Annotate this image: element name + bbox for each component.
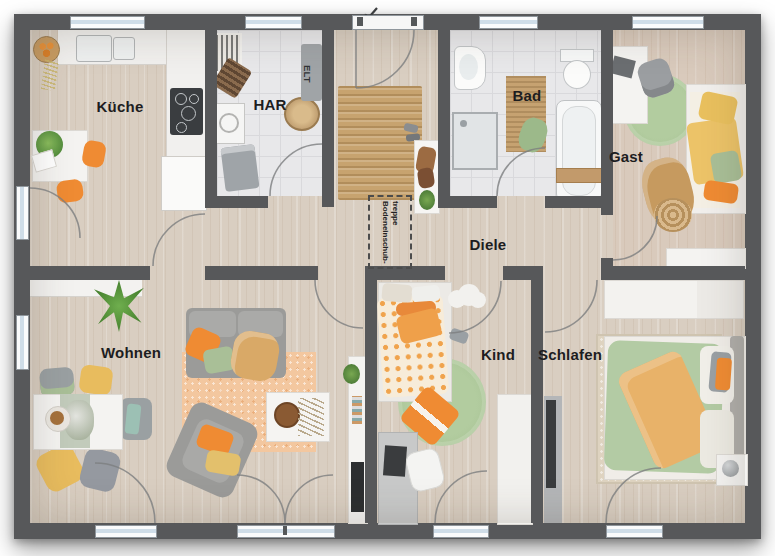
room-label-gast: Gast xyxy=(590,148,662,165)
wall-diele-bad xyxy=(438,30,450,207)
attic-stairs-hatch: Bodeneinschub- treppe xyxy=(368,195,412,269)
wall-bad-gast-upper xyxy=(601,30,613,215)
room-label-har: HAR xyxy=(235,96,305,113)
coffee-bowl xyxy=(274,402,300,428)
kind-monitor xyxy=(383,445,407,476)
wall-bad-bottom-left xyxy=(438,196,497,208)
fridge xyxy=(161,156,207,211)
schlafen-tv xyxy=(546,400,556,488)
cooktop-burner-2 xyxy=(189,94,199,104)
washing-machine-door xyxy=(219,113,239,133)
kitchen-sink-small xyxy=(113,37,135,60)
shower xyxy=(452,112,498,170)
door-kind-bottom xyxy=(433,525,489,538)
attic-stairs-label-line1: Bodeneinschub- xyxy=(380,201,390,264)
kitchen-sink xyxy=(76,35,112,62)
bathtub-tray xyxy=(556,168,602,183)
room-label-kind: Kind xyxy=(462,346,534,363)
attic-stairs-label-line2: treppe xyxy=(390,201,400,264)
room-label-diele: Diele xyxy=(450,236,526,253)
wall-wohnen-kind xyxy=(365,280,377,523)
schlafen-wardrobe xyxy=(604,280,744,319)
wall-bad-bottom-right xyxy=(545,196,613,208)
cooktop-burner-4 xyxy=(176,122,187,133)
coat-dark xyxy=(417,167,436,189)
door-schlafen-bottom xyxy=(606,525,663,538)
label-elt: ELT xyxy=(302,56,322,92)
cooktop-burner-1 xyxy=(175,93,187,105)
dried-twigs xyxy=(298,398,324,436)
attic-stairs-label: Bodeneinschub- treppe xyxy=(380,201,400,264)
entry-door-hinge-right xyxy=(411,17,417,26)
room-label-schlafen: Schlafen xyxy=(525,346,615,363)
shelf-books xyxy=(352,396,362,424)
gast-pillow-sage xyxy=(710,150,743,184)
jute-rug xyxy=(338,86,422,200)
entry-plant xyxy=(419,190,435,210)
wall-main-d xyxy=(503,266,543,280)
wall-kind-schlafen xyxy=(531,280,543,523)
door-kueche-left xyxy=(16,186,29,240)
window-har-top xyxy=(245,16,302,29)
window-gast-top xyxy=(632,16,704,29)
wall-kueche-har xyxy=(205,30,217,207)
wall-har-diele xyxy=(322,30,334,207)
dining-chair-yellow-top xyxy=(78,364,114,396)
double-door-center-post xyxy=(283,526,287,535)
shower-drain xyxy=(460,120,467,127)
sideboard xyxy=(30,280,142,297)
bathroom-sink-basin xyxy=(459,54,478,80)
shelf-plant xyxy=(343,364,360,384)
laundry-basket-gray xyxy=(220,144,259,192)
room-label-kueche: Küche xyxy=(80,98,160,115)
cloud-decor-3 xyxy=(470,292,486,308)
tv xyxy=(351,462,364,512)
toilet-bowl xyxy=(563,60,591,89)
wall-main-b xyxy=(205,266,318,280)
floor-plan: Küche HAR Bad Gast Diele Wohnen Kind Sch… xyxy=(0,0,775,556)
nightstand-lamp xyxy=(722,460,739,477)
wall-main-e xyxy=(601,266,745,280)
wall-main-a xyxy=(30,266,150,280)
wall-har-bottom xyxy=(205,196,268,208)
kind-pillow-beige xyxy=(381,283,412,304)
window-bad-top xyxy=(479,16,538,29)
bed-pillow-orange-accent xyxy=(715,358,732,391)
window-kueche-top xyxy=(70,16,145,29)
dining-chair-green xyxy=(39,367,75,398)
room-label-bad: Bad xyxy=(495,87,559,104)
cooktop-burner-3 xyxy=(181,106,196,121)
kind-wardrobe xyxy=(497,394,533,525)
gast-basket xyxy=(654,198,692,232)
door-wohnen-bottom xyxy=(95,525,157,538)
window-wohnen-left xyxy=(16,315,29,370)
entry-door-hinge-left xyxy=(357,17,363,26)
room-label-wohnen: Wohnen xyxy=(85,344,177,361)
cake xyxy=(50,411,64,425)
